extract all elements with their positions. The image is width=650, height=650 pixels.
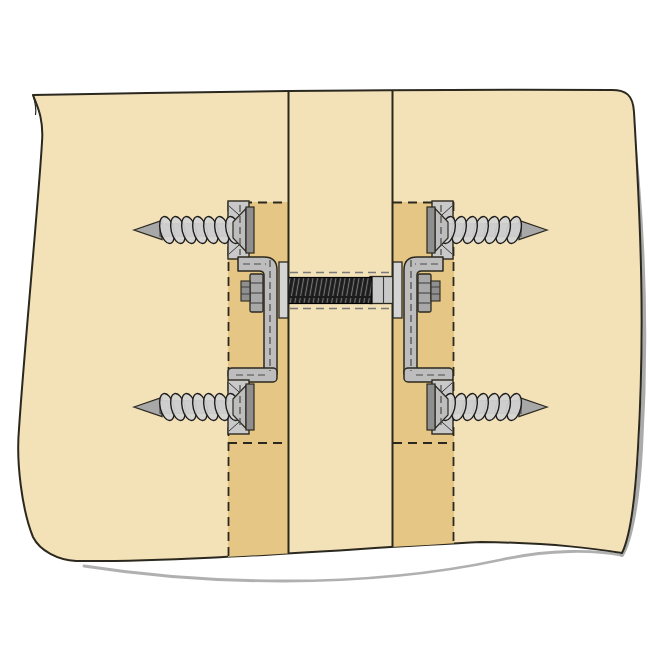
wood-panel [18, 90, 641, 561]
diagram-canvas [0, 0, 650, 650]
spring-sleeve [370, 277, 393, 304]
compression-spring [288, 278, 372, 304]
spring-rod-assembly [288, 273, 393, 309]
panel-connector-diagram [0, 0, 650, 650]
